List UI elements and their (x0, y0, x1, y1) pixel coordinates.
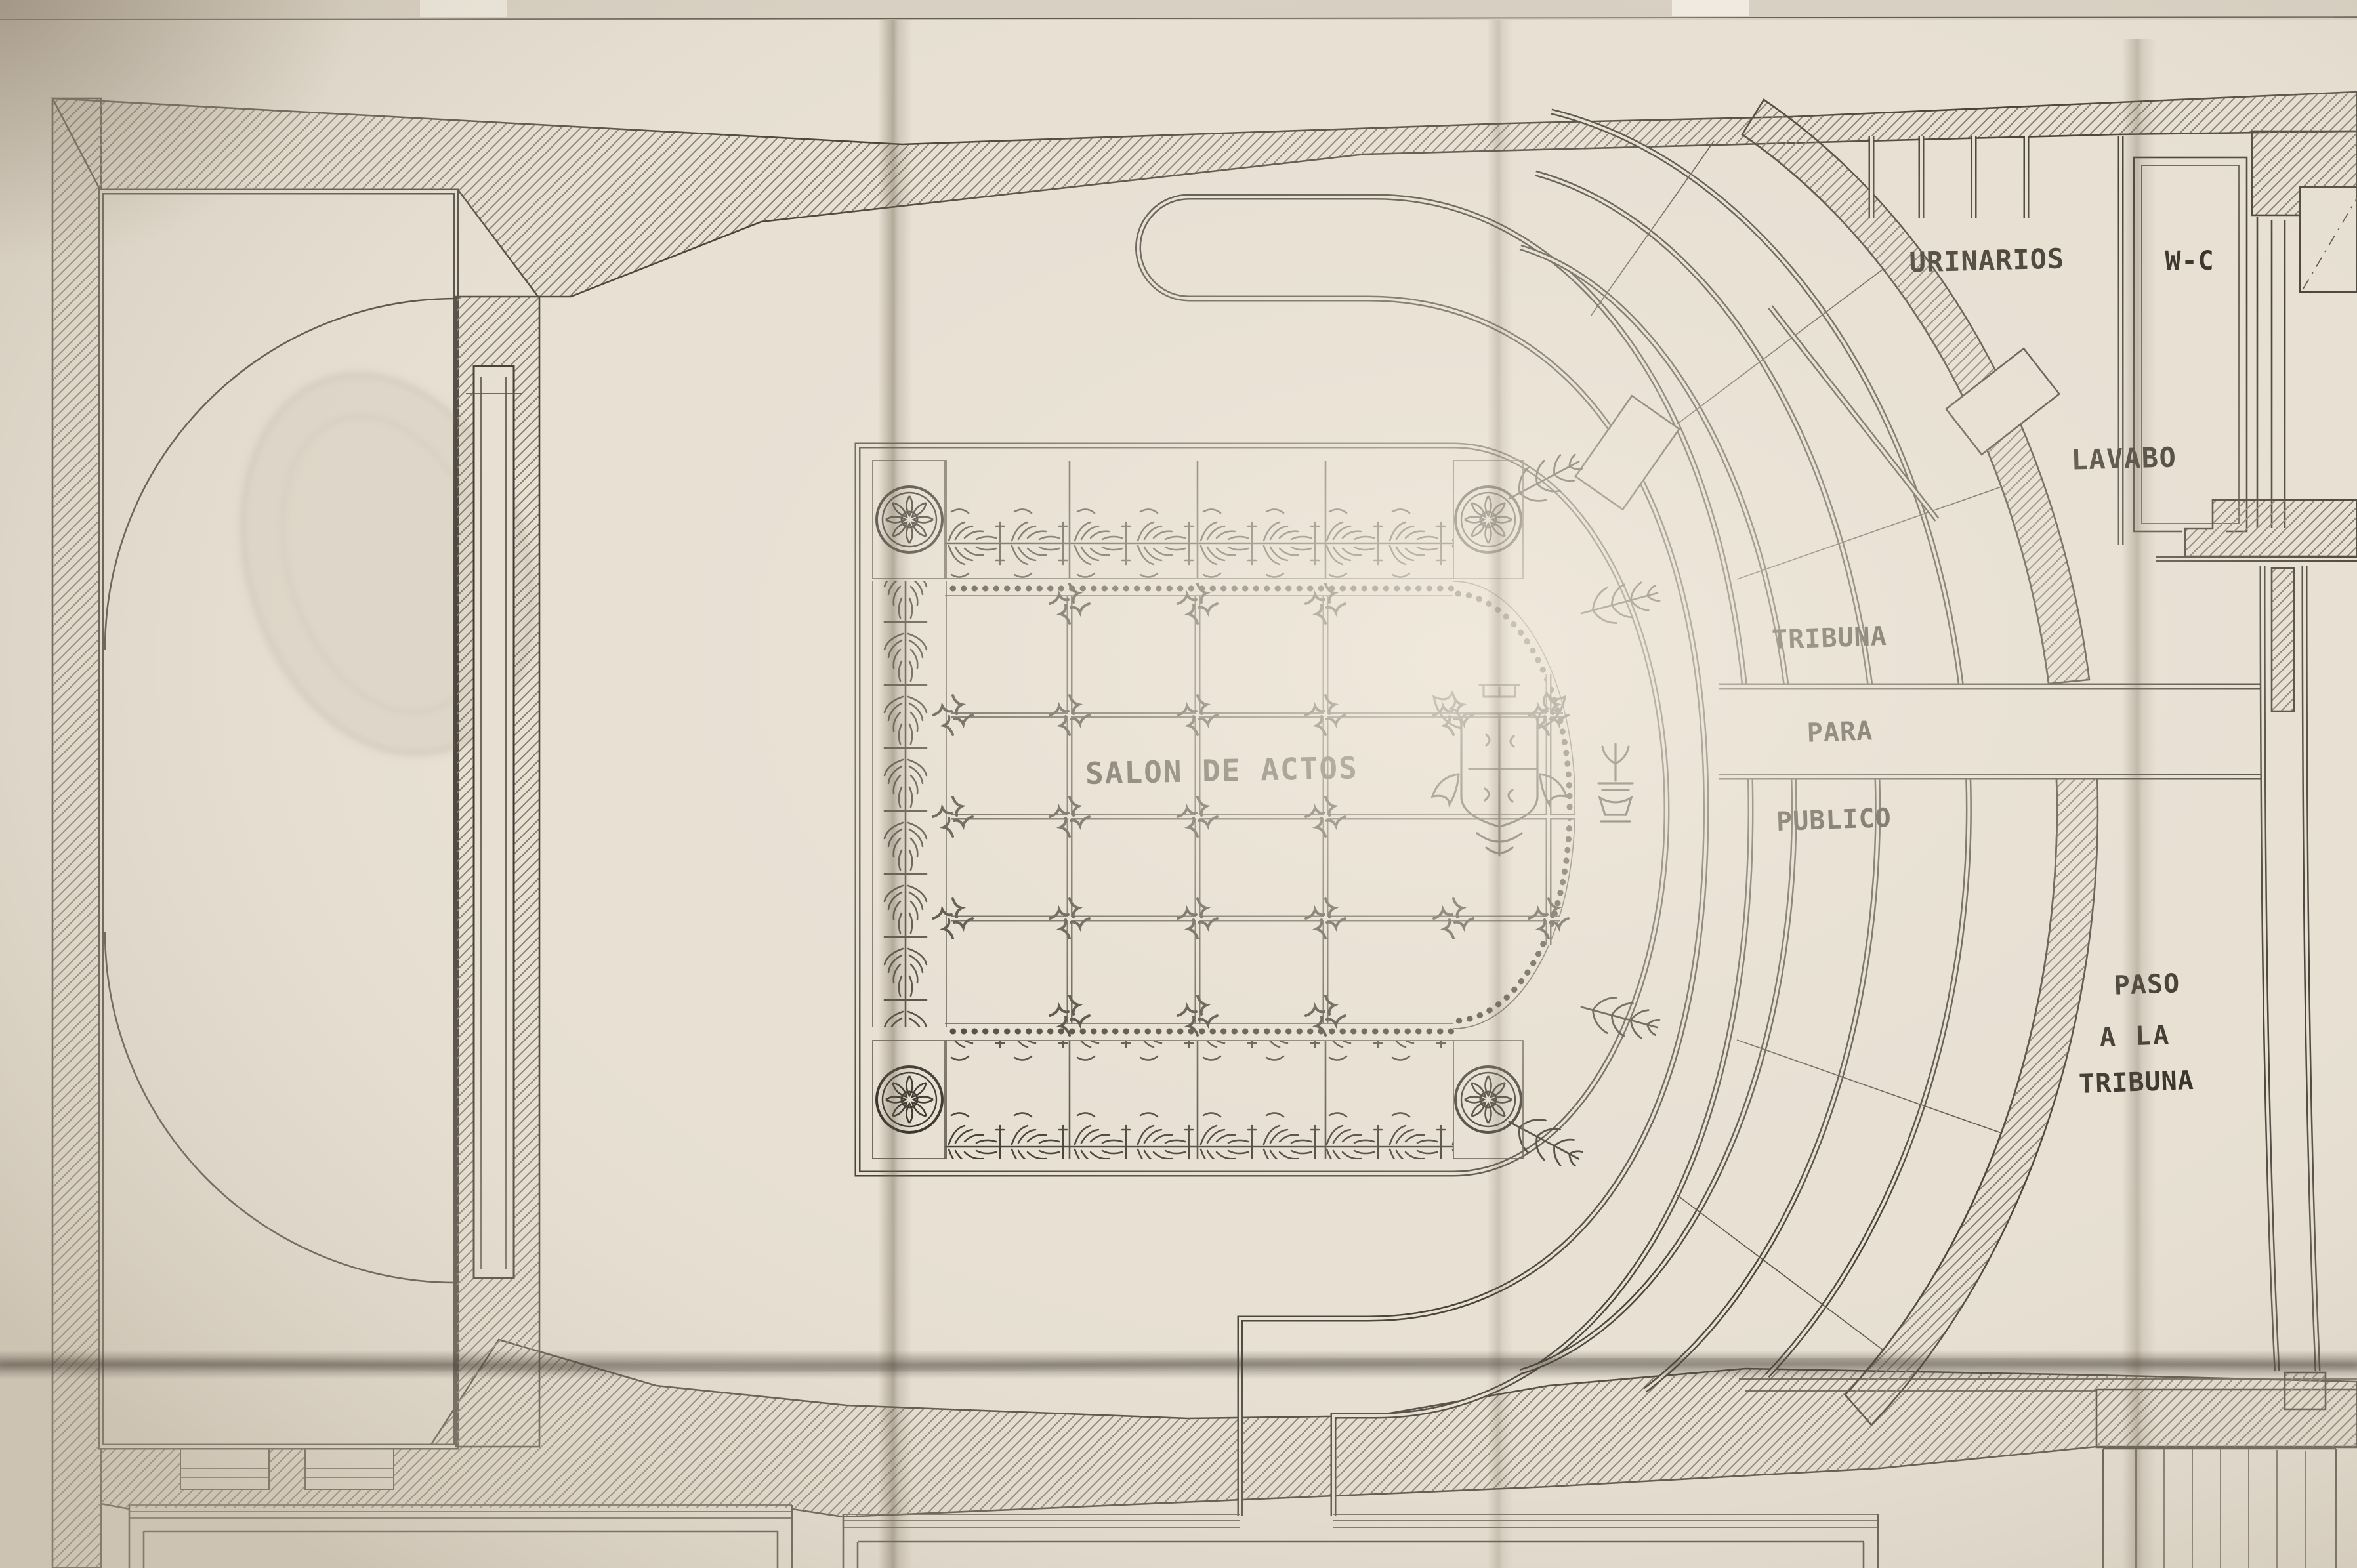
left-outer-wall (52, 98, 101, 1568)
tribune-passage (1719, 686, 2263, 777)
svg-text:TRIBUNA: TRIBUNA (2078, 1065, 2194, 1100)
wall-slot (466, 366, 522, 1278)
svg-text:TRIBUNA: TRIBUNA (1771, 621, 1887, 655)
bottom-room-center (843, 1514, 1878, 1568)
wc-label: W-C (2165, 246, 2214, 276)
tape-fragment (420, 0, 507, 17)
lavabo-label: LAVABO (2071, 441, 2177, 476)
svg-text:PARA: PARA (1806, 716, 1873, 748)
paper-top-edge (0, 0, 2357, 20)
bottom-room-left (129, 1505, 792, 1568)
urinarios-label: URINARIOS (1909, 242, 2065, 278)
floor-plan-photo: SALON DE ACTOS (0, 0, 2357, 1568)
svg-text:PUBLICO: PUBLICO (1776, 803, 1892, 837)
tape-fragment (1672, 0, 1749, 16)
corridor-pier (2272, 568, 2294, 711)
corridor-foot-block (2285, 1372, 2326, 1409)
salon-de-actos-label: SALON DE ACTOS (1085, 750, 1359, 791)
svg-text:A LA: A LA (2099, 1020, 2171, 1053)
svg-text:PASO: PASO (2114, 968, 2180, 1001)
